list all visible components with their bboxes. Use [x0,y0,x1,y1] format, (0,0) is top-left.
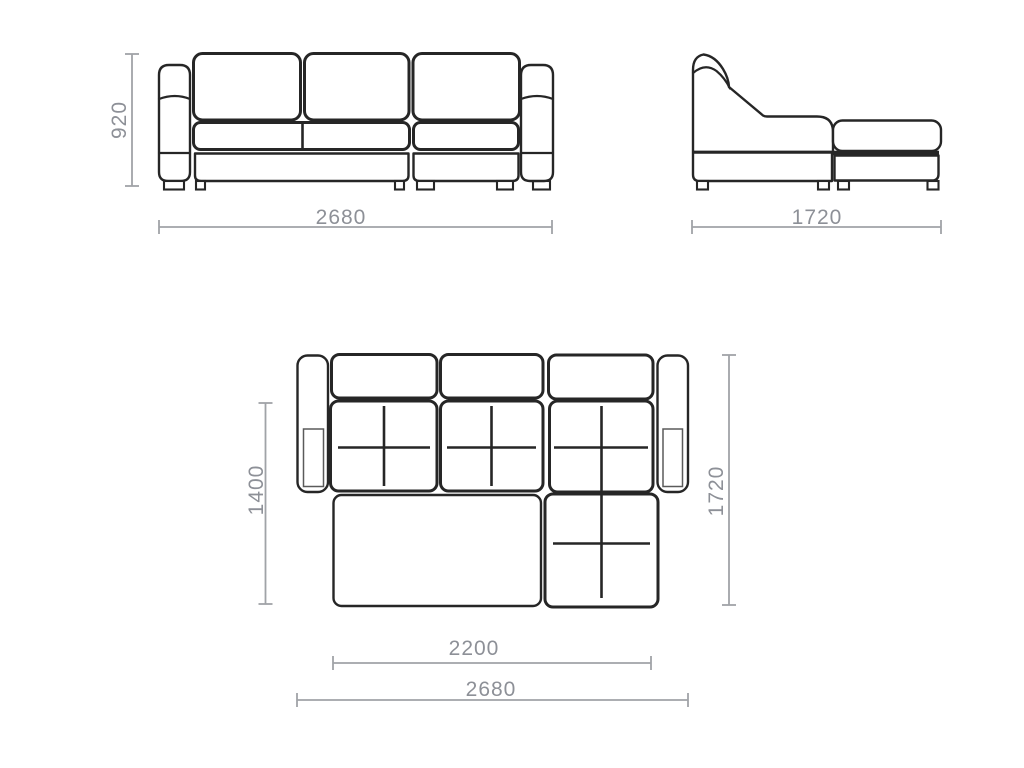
armrest-body [521,65,553,181]
dimension-label: 2200 [449,637,500,660]
dimension-label: 2680 [316,206,367,229]
side-chaise-base [835,156,939,181]
foot [533,181,550,190]
drawing-canvas: 920 2680 1720 [0,0,1024,768]
top-bed-panel [334,495,542,606]
armrest-body [658,356,689,493]
dim-front-width: 2680 [159,206,552,234]
front-back-cushion-1 [194,54,301,121]
foot [417,181,434,190]
front-feet [164,181,550,190]
dim-top-width: 2680 [297,678,688,707]
foot [818,181,829,190]
foot [395,181,404,190]
dimension-label: 1720 [792,206,843,229]
foot [164,181,184,190]
sofa-dimension-drawing: 920 2680 1720 [0,0,1024,768]
foot [196,181,205,190]
top-back-cushion-3 [549,355,654,399]
front-back-cushion-3 [413,54,520,121]
top-view: 1400 1720 2200 2680 [245,355,736,708]
dim-top-bed-depth: 1400 [245,403,273,604]
armrest-body [159,65,190,181]
side-base [693,153,832,182]
foot [838,181,849,190]
top-right-armrest [658,356,689,493]
foot [497,181,513,190]
top-back-cushion-1 [332,355,438,399]
dimension-label: 1720 [705,466,728,517]
dimension-label: 2680 [466,678,517,701]
top-left-armrest [298,356,329,493]
dim-side-depth: 1720 [692,206,941,234]
top-chaise [545,401,658,607]
front-back-cushion-2 [305,54,410,121]
side-feet [697,181,939,190]
top-back-cushion-2 [441,355,544,399]
dim-top-depth: 1720 [705,355,736,605]
foot [697,181,708,190]
front-base-right [414,154,519,182]
front-seat-cushion-right [414,123,519,150]
top-seat-cushion-1 [331,401,438,491]
side-view: 1720 [692,55,941,235]
front-base-left [195,154,409,182]
dimension-label: 920 [108,101,131,139]
front-right-armrest [521,65,553,181]
top-seat-cushion-2 [441,401,544,491]
front-left-armrest [159,65,190,181]
front-view: 920 2680 [108,54,553,235]
dim-front-height: 920 [108,54,139,186]
side-chaise-cushion [833,121,941,152]
dimension-label: 1400 [245,465,268,516]
foot [928,181,939,190]
dim-top-bed-length: 2200 [333,637,651,670]
